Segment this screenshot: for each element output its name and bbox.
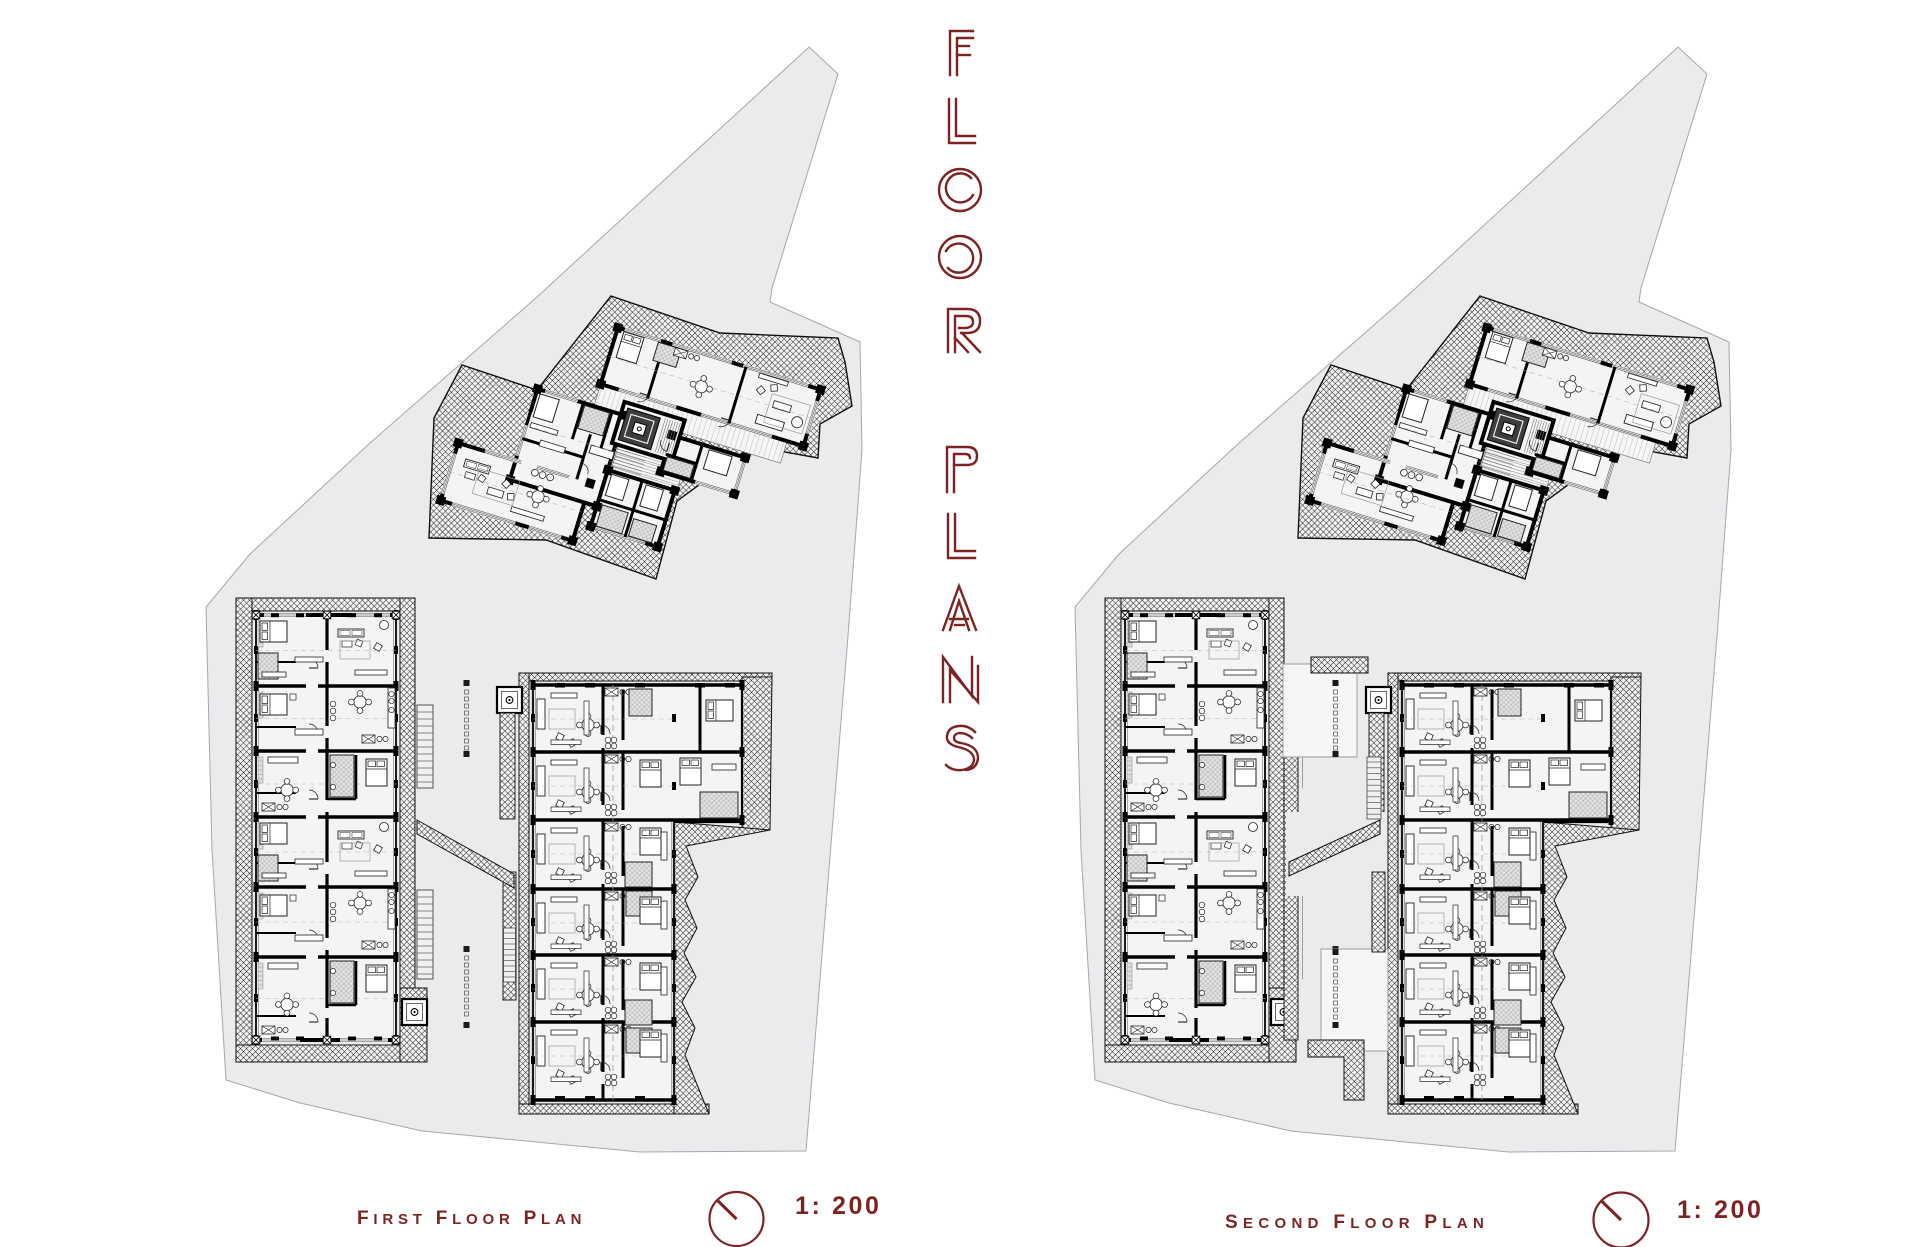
- svg-text:FIRST FLOOR PLAN: FIRST FLOOR PLAN: [357, 1208, 593, 1229]
- svg-text:1: 200: 1: 200: [795, 1192, 882, 1220]
- svg-text:SECOND FLOOR PLAN: SECOND FLOOR PLAN: [1225, 1212, 1496, 1233]
- svg-text:1: 200: 1: 200: [1677, 1196, 1764, 1224]
